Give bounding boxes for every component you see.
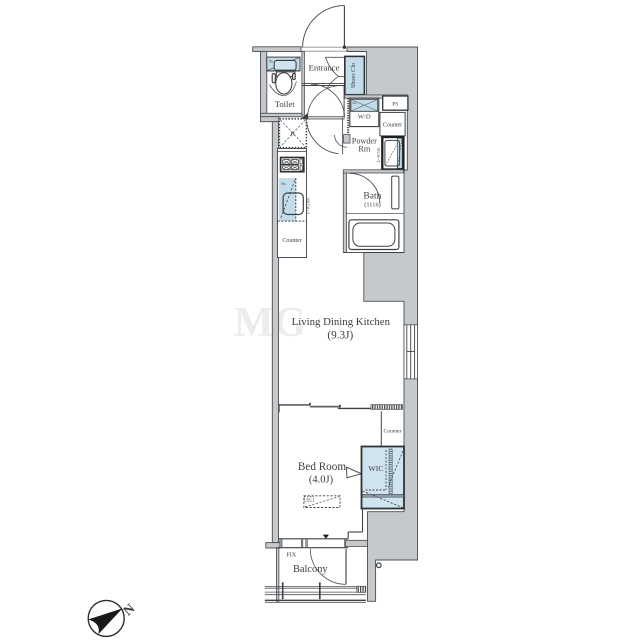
svg-text:W/D: W/D bbox=[358, 114, 371, 121]
svg-text:R: R bbox=[291, 130, 296, 137]
svg-text:Sts.: Sts. bbox=[352, 101, 357, 105]
svg-text:Toilet: Toilet bbox=[275, 99, 296, 109]
svg-text:Counter: Counter bbox=[383, 429, 401, 435]
svg-text:Counter: Counter bbox=[282, 238, 301, 244]
svg-text:FIX: FIX bbox=[286, 552, 296, 558]
svg-text:PS: PS bbox=[392, 102, 398, 108]
svg-text:(4.0J): (4.0J) bbox=[309, 474, 334, 485]
svg-text:Entrance: Entrance bbox=[309, 63, 340, 73]
svg-text:Shoes Clo: Shoes Clo bbox=[350, 63, 357, 88]
svg-text:Sts.: Sts. bbox=[281, 182, 286, 186]
svg-text:WIC: WIC bbox=[368, 464, 383, 473]
svg-text:Sts.: Sts. bbox=[269, 60, 274, 64]
svg-text:Rm: Rm bbox=[358, 145, 370, 154]
svg-text:AC: AC bbox=[306, 497, 312, 502]
svg-text:(9.3J): (9.3J) bbox=[327, 330, 353, 342]
svg-text:Bed Room: Bed Room bbox=[298, 461, 346, 473]
svg-text:Balcony: Balcony bbox=[293, 564, 328, 575]
svg-text:L=W2300: L=W2300 bbox=[306, 198, 311, 214]
svg-text:Counter: Counter bbox=[383, 123, 402, 129]
svg-text:L=W750: L=W750 bbox=[376, 148, 381, 162]
svg-text:(1116): (1116) bbox=[364, 202, 381, 209]
svg-text:Living Dining Kitchen: Living Dining Kitchen bbox=[292, 316, 391, 328]
svg-text:Bath: Bath bbox=[363, 192, 381, 202]
